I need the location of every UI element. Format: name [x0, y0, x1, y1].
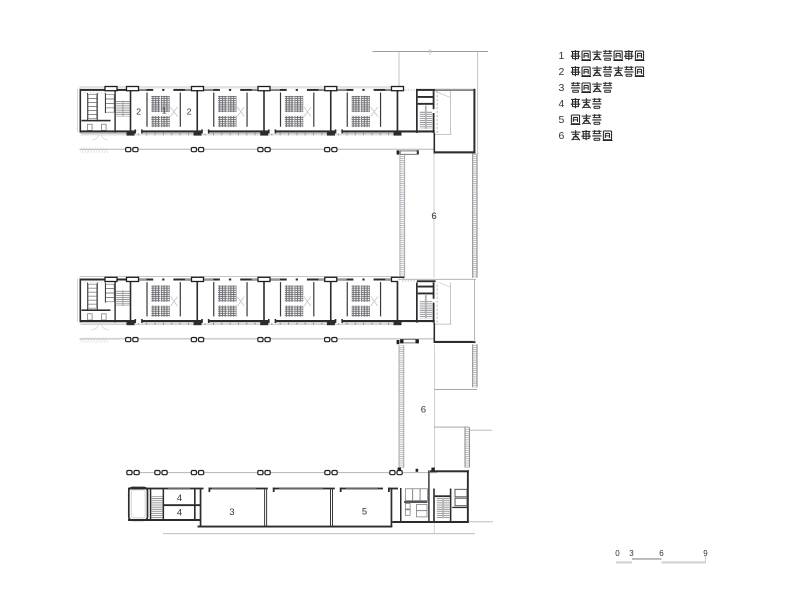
- svg-text:5: 5: [362, 505, 367, 516]
- svg-text:3: 3: [629, 549, 634, 558]
- svg-text:1: 1: [162, 106, 167, 116]
- svg-text:4: 4: [559, 98, 565, 110]
- svg-text:6: 6: [659, 549, 664, 558]
- svg-text:2: 2: [559, 66, 565, 78]
- svg-text:4: 4: [177, 492, 182, 503]
- svg-text:1: 1: [559, 50, 565, 62]
- svg-text:6: 6: [421, 405, 426, 416]
- svg-text:4: 4: [177, 506, 182, 517]
- svg-text:6: 6: [431, 211, 436, 222]
- svg-text:2: 2: [136, 106, 141, 116]
- svg-text:2: 2: [187, 106, 192, 116]
- svg-text:3: 3: [229, 506, 234, 517]
- svg-text:5: 5: [559, 114, 565, 126]
- svg-text:6: 6: [559, 130, 565, 142]
- svg-text:0: 0: [615, 549, 620, 558]
- svg-text:3: 3: [559, 82, 565, 94]
